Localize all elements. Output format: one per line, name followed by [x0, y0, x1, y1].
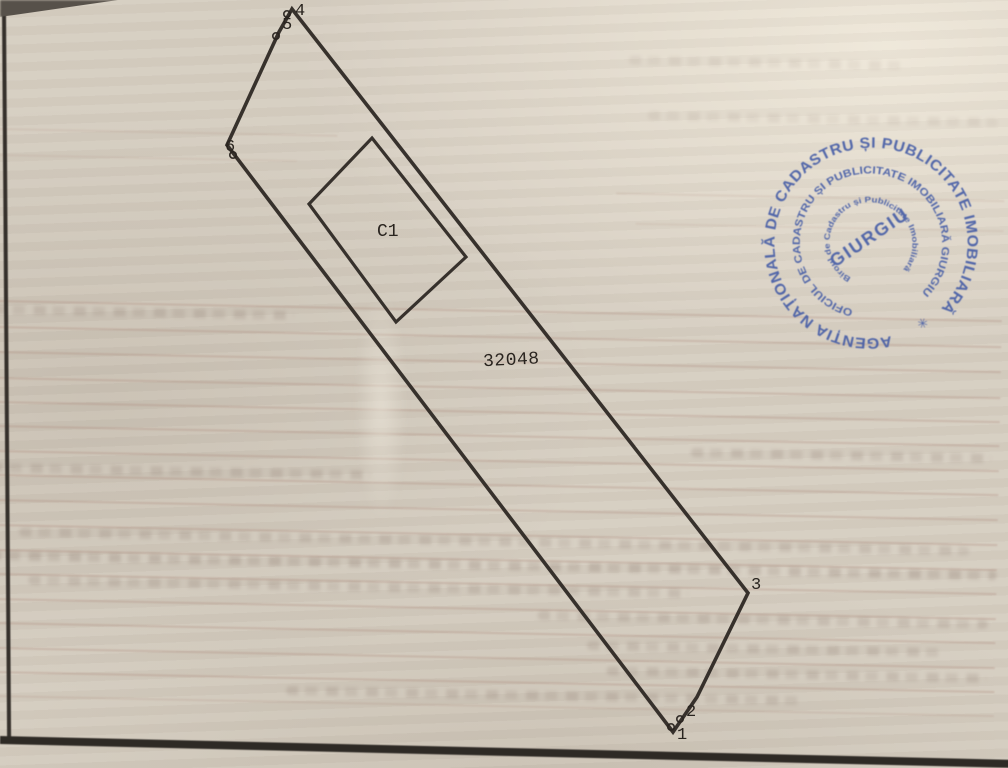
stamp-ink: AGENȚIA NAȚIONALĂ DE CADASTRU ȘI PUBLICI…	[761, 135, 980, 352]
scanned-document-page: 1 2 3 4 5 6 C1 32048 AGENȚIA NAȚIONALĂ D…	[0, 0, 1008, 768]
ocpi-giurgiu-stamp: AGENȚIA NAȚIONALĂ DE CADASTRU ȘI PUBLICI…	[0, 0, 1008, 768]
stamp-separator-star-icon: ✳	[915, 315, 930, 333]
